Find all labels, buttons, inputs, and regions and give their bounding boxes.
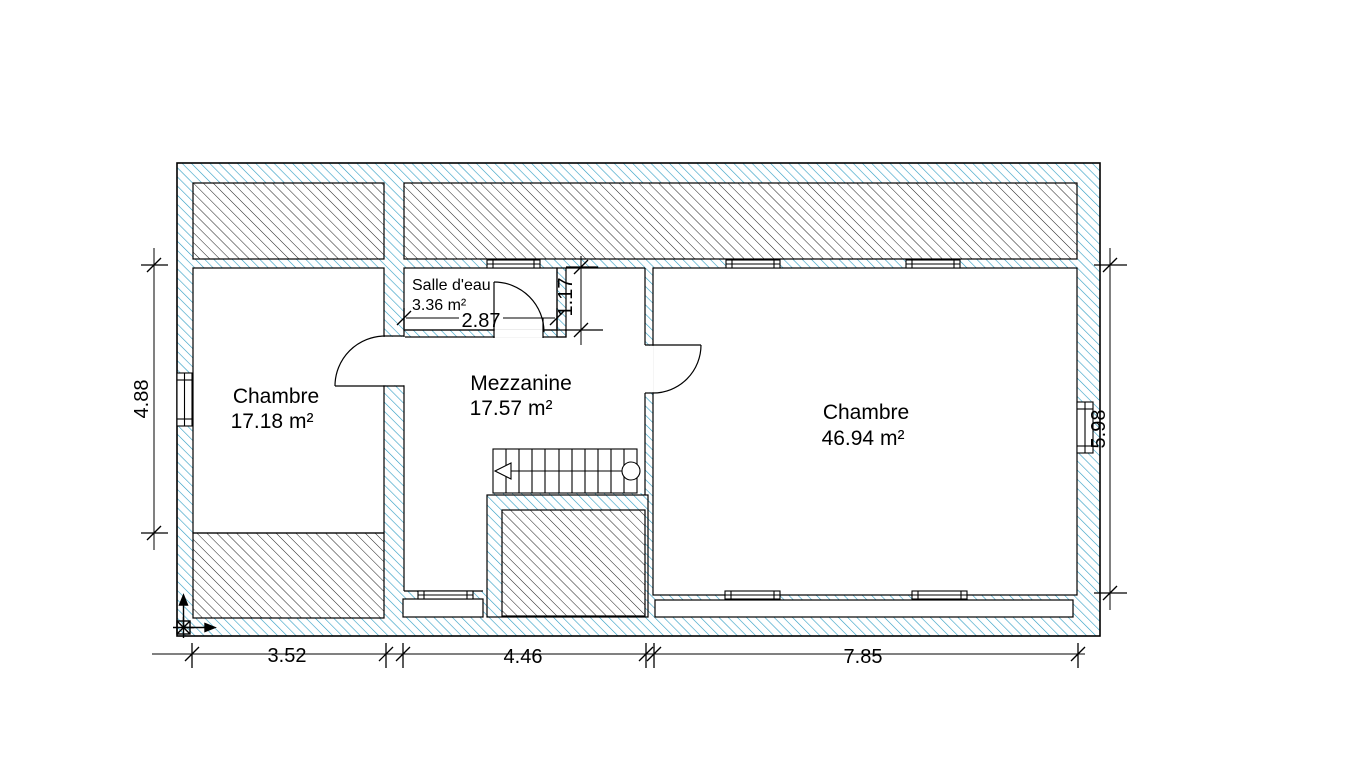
dim-left: 4.88 — [131, 380, 153, 419]
dim-ticks-bottom — [185, 643, 1085, 668]
stairs-newel-circle — [622, 462, 640, 480]
dim-bottom-right: 7.85 — [844, 646, 883, 668]
dim-right: 5.98 — [1088, 410, 1110, 449]
slope-zone-bottom-left — [193, 533, 384, 618]
floor-plan-canvas: Chambre 17.18 m² Mezzanine 17.57 m² Sall… — [0, 0, 1359, 763]
window-left-wall — [177, 373, 192, 426]
window-chambre-right-bottom-2 — [912, 591, 967, 599]
window-chambre-right-top-1 — [726, 260, 780, 268]
floor-plan-drawing: Chambre 17.18 m² Mezzanine 17.57 m² Sall… — [0, 0, 1359, 763]
slope-zone-top-right — [404, 183, 1077, 259]
room-area-mezzanine: 17.57 m² — [470, 397, 553, 420]
room-label-chambre-right: Chambre — [823, 401, 909, 424]
room-area-chambre-right: 46.94 m² — [822, 427, 905, 450]
dim-salle-height: 1.17 — [555, 278, 577, 317]
room-label-salle-eau: Salle d'eau — [412, 277, 491, 294]
window-mezzanine-bottom — [418, 591, 473, 599]
window-chambre-right-top-2 — [906, 260, 960, 268]
room-label-chambre-left: Chambre — [233, 385, 319, 408]
stairs — [493, 449, 640, 493]
room-area-chambre-left: 17.18 m² — [231, 410, 314, 433]
dim-salle-width: 2.87 — [462, 310, 501, 332]
window-chambre-right-bottom-1 — [725, 591, 780, 599]
window-salle-eau-top — [487, 260, 540, 268]
dim-bottom-middle: 4.46 — [504, 646, 543, 668]
room-label-mezzanine: Mezzanine — [470, 372, 572, 395]
dim-bottom-left: 3.52 — [268, 645, 307, 667]
room-area-salle-eau: 3.36 m² — [412, 297, 467, 314]
slope-zone-under-stairs — [502, 510, 645, 616]
slope-zone-top-left — [193, 183, 384, 259]
